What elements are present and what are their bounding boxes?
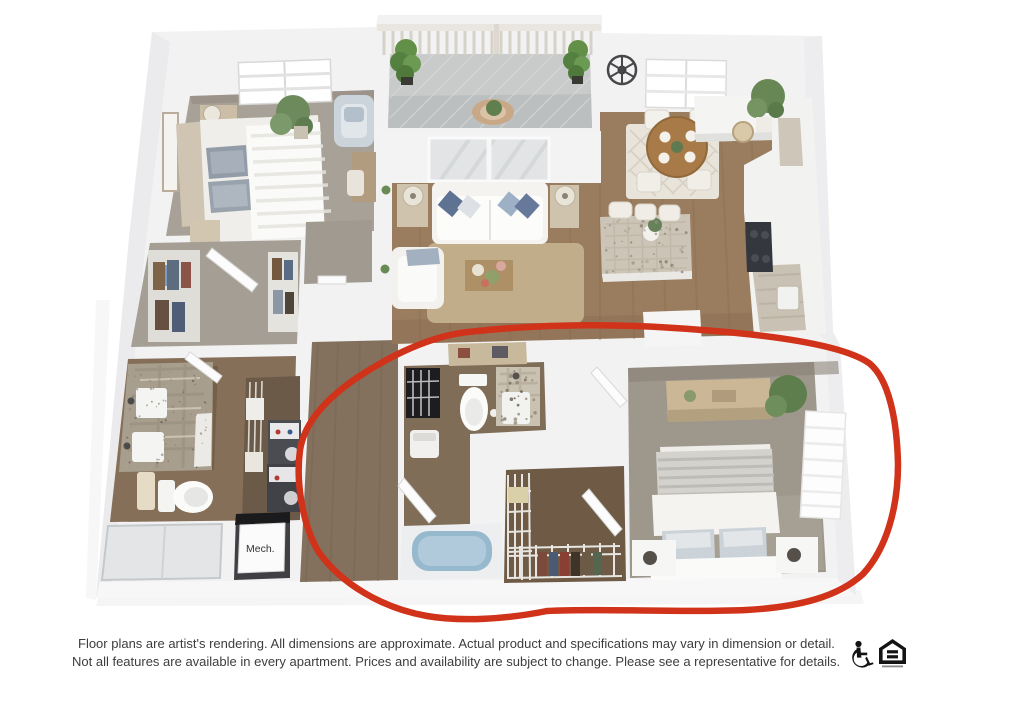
- svg-text:Floor plans are artist's rende: Floor plans are artist's rendering. All …: [78, 636, 835, 651]
- svg-text:Mech.: Mech.: [246, 543, 275, 555]
- svg-text:Not all features are available: Not all features are available in every …: [72, 654, 840, 669]
